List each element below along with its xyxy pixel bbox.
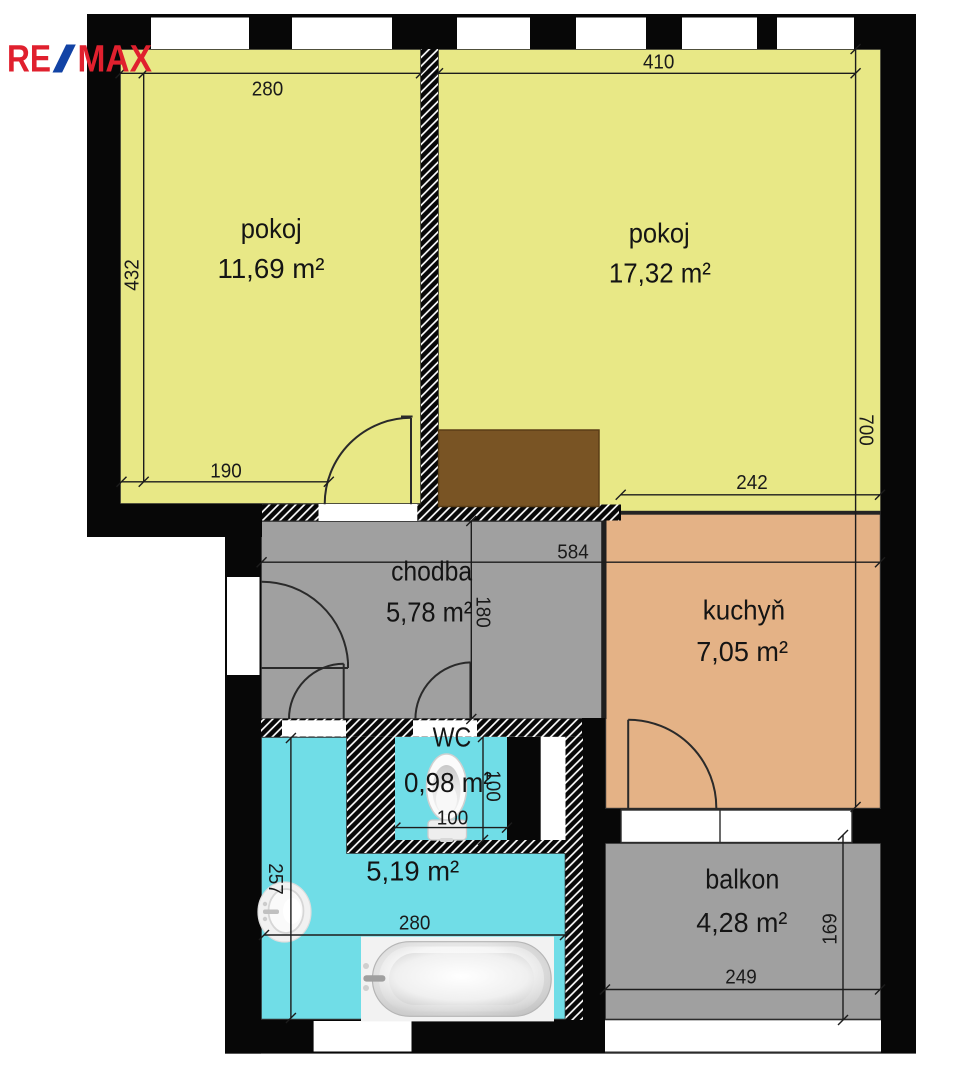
svg-text:432: 432	[121, 259, 144, 291]
svg-text:100: 100	[437, 807, 469, 830]
svg-text:5,19 m²: 5,19 m²	[366, 856, 459, 887]
svg-text:280: 280	[399, 912, 431, 935]
svg-text:584: 584	[557, 541, 589, 564]
svg-text:WC: WC	[433, 722, 472, 753]
svg-text:11,69 m²: 11,69 m²	[218, 253, 325, 284]
svg-text:410: 410	[643, 51, 675, 74]
svg-text:RE: RE	[7, 39, 51, 81]
svg-text:249: 249	[725, 966, 757, 989]
svg-text:pokoj: pokoj	[241, 213, 302, 244]
svg-text:169: 169	[819, 913, 842, 945]
svg-text:190: 190	[210, 460, 242, 483]
svg-text:0,98 m²: 0,98 m²	[404, 767, 492, 798]
svg-text:balkon: balkon	[705, 863, 779, 894]
svg-text:chodba: chodba	[391, 555, 472, 586]
svg-text:MAX: MAX	[78, 39, 153, 81]
svg-text:180: 180	[472, 596, 495, 628]
svg-text:242: 242	[736, 471, 768, 494]
svg-text:pokoj: pokoj	[629, 218, 690, 249]
svg-text:700: 700	[855, 414, 878, 446]
svg-text:kuchyň: kuchyň	[703, 595, 785, 626]
svg-text:280: 280	[252, 78, 284, 101]
svg-text:17,32 m²: 17,32 m²	[609, 257, 711, 288]
svg-text:5,78 m²: 5,78 m²	[386, 597, 473, 628]
svg-text:7,05 m²: 7,05 m²	[696, 636, 788, 667]
svg-text:4,28 m²: 4,28 m²	[696, 907, 787, 938]
svg-text:257: 257	[264, 863, 287, 895]
